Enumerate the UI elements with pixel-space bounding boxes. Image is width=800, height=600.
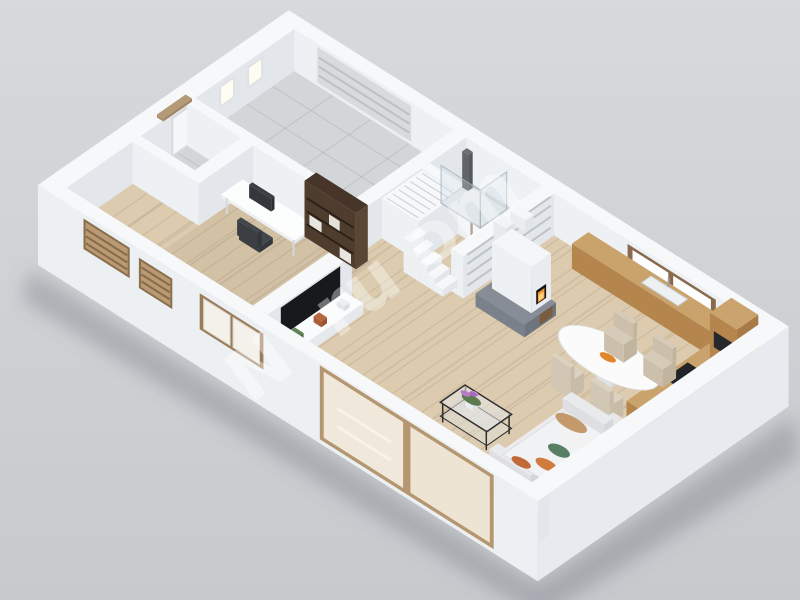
wall-entry-front-face-se (199, 178, 207, 226)
dining-chair-2-back-face-se (673, 346, 677, 363)
floorplan-render: Nruom (0, 0, 800, 600)
monitor-face-se (271, 196, 274, 211)
dining-chair-4-back-face-se (610, 390, 614, 407)
dining-chair-1-back-face-se (633, 321, 637, 338)
screenshot-root: Nruom (0, 0, 800, 600)
wall-southwest-face-se (538, 493, 550, 543)
office-chair-back-face-se (258, 230, 262, 248)
dining-chair-3-back-face-se (571, 365, 575, 382)
